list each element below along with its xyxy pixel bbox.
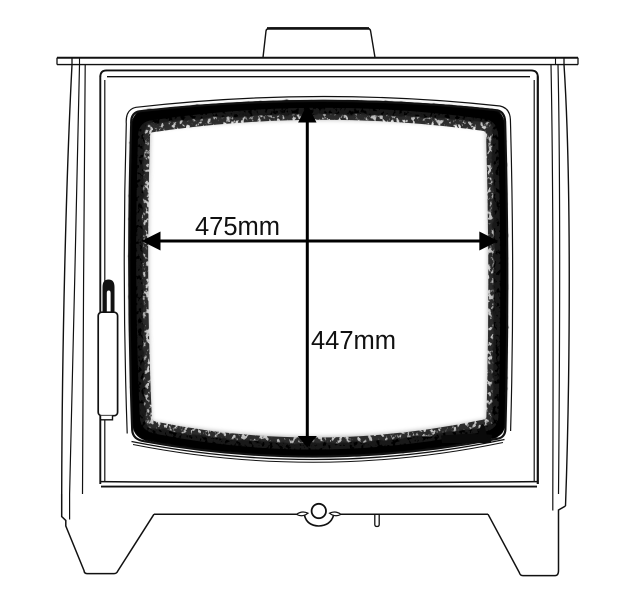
svg-text:447mm: 447mm [311, 327, 396, 355]
svg-text:475mm: 475mm [195, 213, 280, 241]
